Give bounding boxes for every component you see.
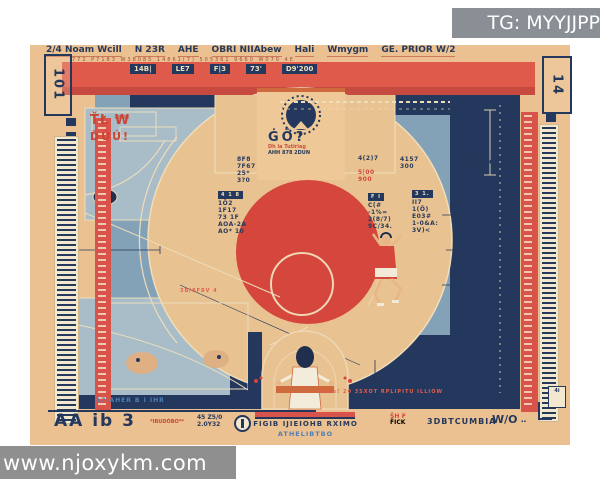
annotation-stack-c: 4(2)7 5|00 900 [358,148,379,183]
paint-mark-2: ĎÚÚ! [90,130,130,143]
bottom-token-4: W/O [492,413,518,426]
bottom-token-5: ‥ [521,415,526,424]
annotation-stack-g: 4157 300 [400,149,419,170]
bottom-token-chip: ŠH ₣ F̈ICK [390,414,406,426]
bottom-blue-note: 17 AHER B I IHR [96,397,165,404]
poster-page: 2/4 Noam Wcill N 23R AHE OBRI NIIAbew Ha… [0,0,600,480]
header-token: N 23R [135,45,165,57]
right-red-strip [521,112,538,412]
bottom-logo: AA ib 3 [54,411,136,431]
watermark-tg: TG: MYYJJPP [452,8,600,38]
banner-chip: D9'200 [282,64,317,74]
header-token: AHE [178,45,199,57]
right-ruler [539,124,559,422]
header-token: OBRI NIIAbew [212,45,282,57]
header-token: GE. PRIOR W/2 [381,45,455,57]
bottom-logo-sub: *IBUDÒBO** [150,419,184,425]
bottom-caption-line1: FIGIB IJIEIOHB RXIMO [243,420,368,428]
caption-bar [255,412,355,419]
header-garble-row: 2/4 Noam Wcill N 23R AHE OBRI NIIAbew Ha… [46,45,455,57]
paint-mark-3: 3B/8F8V 4 [180,288,218,294]
annotation-stack-d: F I C(# -1%= 2(8/7) 9C/34. [368,186,392,230]
banner-chip: 14B| [130,64,156,74]
bottom-caption-line2: ATHELIBTBO [243,430,368,438]
court-graphic [30,45,570,445]
center-caption: ĠŌ? Dh ia Tutiriag AHH 878 2DUN [268,131,342,156]
banner-chip: LE7 [172,64,194,74]
header-token: Wmygm [327,45,368,57]
annotation-stack-e: 3 1. II7 1(Ŏ) E03# 1-0&A: 3V)< [412,183,438,234]
header-subline: 772 P7183 W38085 14861(7) 505361 9660 W0… [72,57,295,63]
banner-chip: F|3 [210,64,230,74]
banner-chip-row: 14B| LE7 F|3 73' D9'200 [130,64,317,74]
left-ruler [54,136,79,424]
header-token: Hali [295,45,315,57]
banner-chip: 73' [246,64,266,74]
corner-tag-left: 101 [44,54,72,116]
center-red-circle [236,180,380,324]
annotation-stack-a: 8F8 7F67 25* 3?0 [237,149,256,184]
right-ruler-ticks [542,127,556,419]
annotation-stack-f: 7009? MBI 870 [463,145,494,166]
bottom-redbar-note: A9EB3 I IVB [184,399,240,406]
corner-tag-right: 14 [542,56,572,114]
center-caption-sub2: AHH 878 2DUN [268,150,342,156]
navy-band-note: 3kwh! 20 3SXOT RPLIPITU ILLIOW [318,389,443,395]
left-ruler-ticks [57,139,76,421]
annotation-stack-b: 4 1 8 1Ŏ2 1F17 73 1F AOA-2A AO* 10 [218,184,247,235]
center-caption-title: ĠŌ? [268,131,342,144]
paint-mark-1: ŤŁ ₩ [90,113,130,128]
left-red-strip [95,118,111,412]
watermark-site: www.njoxykm.com [0,446,236,479]
bottom-right-chip: 4i [548,386,566,408]
bottom-coordinates: 45 Z5/0 2.0Y32 [197,414,222,428]
bottom-token-3: 3DBTCUMBIA [427,417,496,426]
